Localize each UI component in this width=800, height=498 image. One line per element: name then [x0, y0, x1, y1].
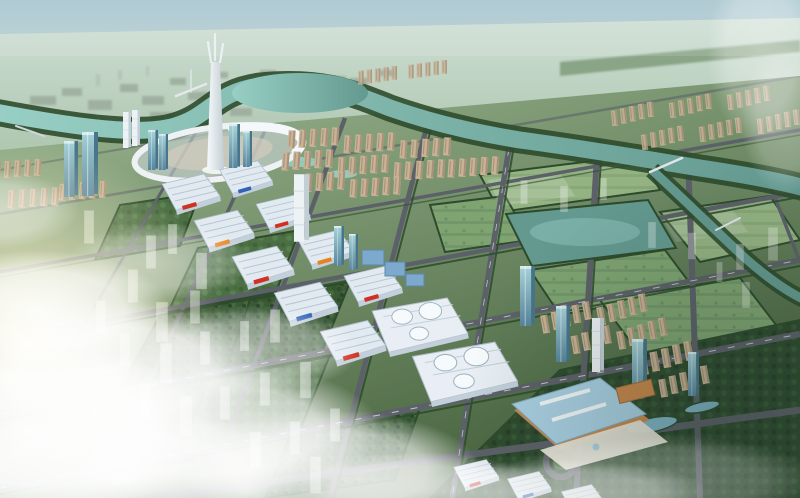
glass-tower [334, 226, 344, 266]
glass-tower [349, 234, 358, 270]
white-tower [294, 174, 309, 242]
midrise-block [406, 274, 424, 286]
glass-tower [159, 134, 168, 170]
glass-tower [243, 131, 252, 167]
midrise-block [385, 262, 405, 276]
ghost-tower [560, 186, 567, 211]
aerial-city-rendering [0, 0, 800, 498]
white-tower [123, 112, 131, 148]
river-lake [232, 73, 368, 113]
ghost-tower [521, 180, 528, 203]
horizon-haze [0, 0, 800, 56]
glass-tower [229, 124, 240, 168]
white-tower [132, 110, 140, 146]
glass-tower [148, 130, 158, 170]
midrise-block [362, 250, 384, 265]
scene-canvas [0, 0, 800, 498]
